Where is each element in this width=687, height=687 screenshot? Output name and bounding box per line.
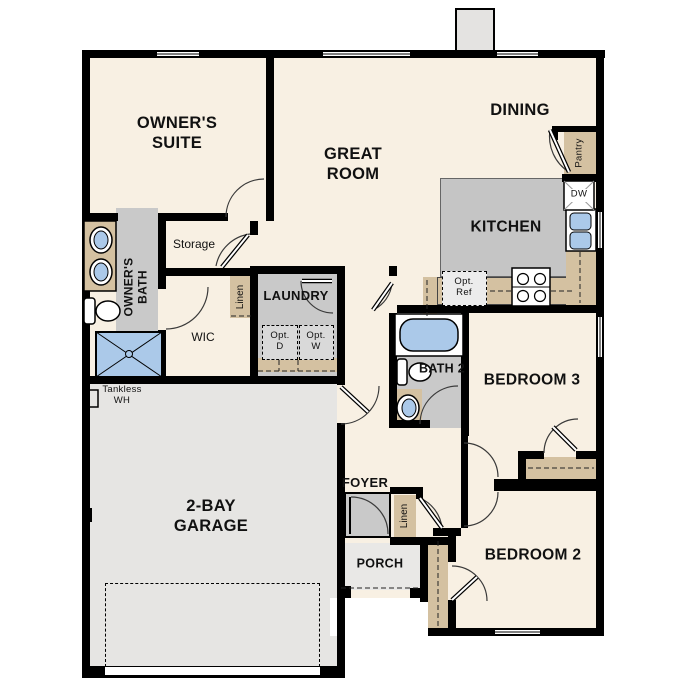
label-foyer: FOYER xyxy=(342,475,388,491)
bedroom3-closet xyxy=(526,457,596,479)
wall xyxy=(337,423,345,676)
garage-parking-outline xyxy=(105,583,320,667)
wall xyxy=(266,50,274,221)
label-bedroom3: BEDROOM 3 xyxy=(484,372,581,391)
wall xyxy=(250,266,345,274)
window xyxy=(597,212,603,248)
wall xyxy=(337,586,351,598)
label-bath2: BATH 2 xyxy=(419,362,465,377)
door-leaf-wall xyxy=(461,436,468,528)
label-linen-wic: Linen xyxy=(235,285,247,309)
wall xyxy=(552,126,558,140)
laundry-counter xyxy=(256,358,337,372)
wall xyxy=(158,268,258,276)
wall xyxy=(250,268,258,380)
wall xyxy=(397,305,604,313)
wall xyxy=(158,330,166,380)
wall xyxy=(390,537,448,545)
wall xyxy=(562,174,596,182)
label-bedroom2: BEDROOM 2 xyxy=(485,547,582,566)
label-tankless-wh: Tankless WH xyxy=(94,385,150,407)
wall xyxy=(576,451,604,459)
label-great-room: GREAT ROOM xyxy=(306,145,401,185)
label-opt-ref: Opt. Ref xyxy=(449,277,479,299)
label-opt-washer: Opt. W xyxy=(303,331,329,353)
wall xyxy=(82,50,90,678)
label-dining: DINING xyxy=(490,101,550,121)
label-wic: WIC xyxy=(191,330,214,344)
wall xyxy=(433,528,461,536)
label-porch: PORCH xyxy=(357,557,404,572)
label-owners-suite: OWNER'S SUITE xyxy=(122,114,232,154)
wall xyxy=(389,420,430,428)
wall xyxy=(410,588,428,598)
wall xyxy=(494,479,604,491)
label-dishwasher: DW xyxy=(571,190,587,201)
label-garage: 2-BAY GARAGE xyxy=(154,497,269,537)
label-laundry: LAUNDRY xyxy=(263,288,328,304)
chimney-box xyxy=(455,8,495,52)
window xyxy=(323,51,410,57)
wall xyxy=(552,126,596,132)
label-kitchen: KITCHEN xyxy=(471,219,542,238)
bedroom2-closet xyxy=(428,537,448,628)
label-opt-dryer: Opt. D xyxy=(267,331,293,353)
label-pantry: Pantry xyxy=(575,138,586,167)
label-owners-bath: OWNER'S BATH xyxy=(122,255,151,319)
label-storage: Storage xyxy=(173,237,215,251)
label-linen-hall: Linen xyxy=(399,504,411,528)
wall xyxy=(389,313,397,428)
wall xyxy=(158,213,166,289)
wall xyxy=(518,451,526,487)
window xyxy=(157,51,199,57)
wall xyxy=(84,508,92,522)
window xyxy=(497,51,538,57)
wall xyxy=(337,266,345,385)
wall xyxy=(82,213,118,221)
wall xyxy=(448,600,456,628)
kitchen-counter-right xyxy=(566,248,596,305)
wall xyxy=(82,376,345,384)
wall xyxy=(389,266,397,276)
floor-plan: OWNER'S SUITE GREAT ROOM DINING KITCHEN … xyxy=(0,0,687,687)
window xyxy=(495,629,540,635)
garage-door xyxy=(105,666,320,676)
wall xyxy=(250,221,258,235)
wall xyxy=(158,213,228,221)
wall xyxy=(416,487,423,499)
window xyxy=(597,317,603,357)
